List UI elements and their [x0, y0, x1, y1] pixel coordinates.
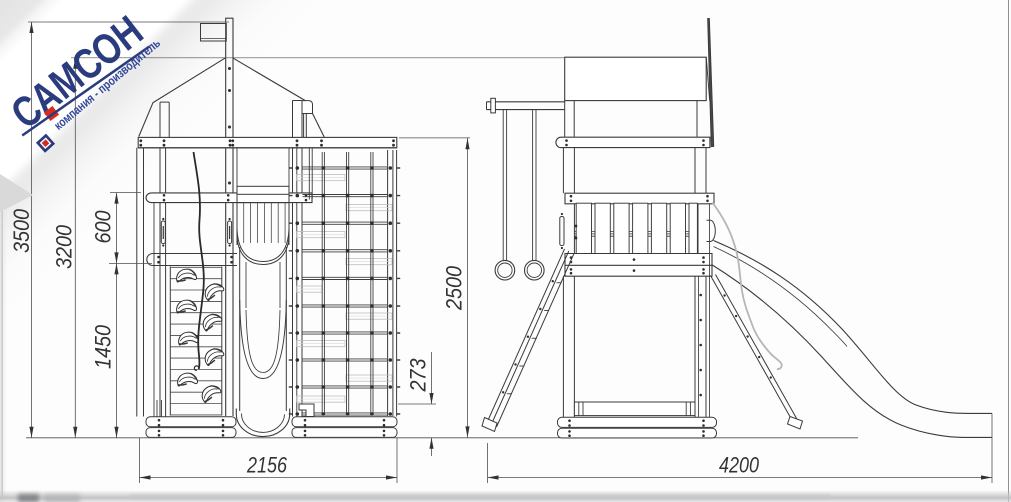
svg-text:273: 273: [406, 358, 431, 393]
svg-text:4200: 4200: [719, 453, 760, 478]
svg-text:2500: 2500: [442, 265, 467, 311]
svg-text:2156: 2156: [246, 453, 287, 478]
svg-text:1450: 1450: [91, 324, 116, 369]
